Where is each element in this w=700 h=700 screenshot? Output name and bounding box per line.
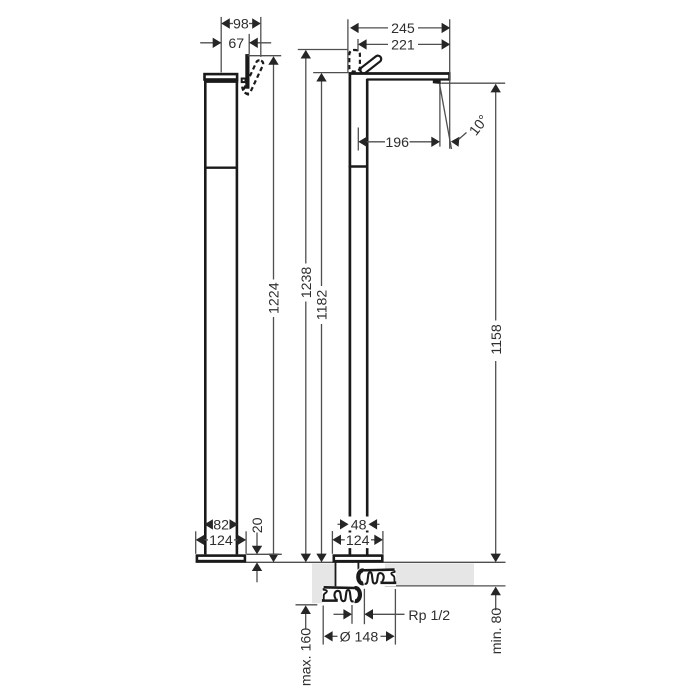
svg-text:245: 245 — [391, 21, 415, 37]
svg-text:82: 82 — [213, 518, 229, 534]
svg-text:196: 196 — [385, 135, 409, 151]
svg-text:Ø 148: Ø 148 — [340, 629, 379, 645]
svg-text:1238: 1238 — [299, 267, 315, 299]
svg-text:1182: 1182 — [315, 290, 331, 321]
svg-text:1224: 1224 — [267, 282, 283, 314]
svg-text:48: 48 — [351, 517, 367, 533]
svg-text:Rp 1/2: Rp 1/2 — [408, 608, 450, 624]
svg-text:98: 98 — [233, 17, 249, 33]
svg-text:221: 221 — [391, 38, 415, 54]
svg-text:124: 124 — [209, 533, 233, 549]
svg-text:min. 80: min. 80 — [489, 608, 505, 655]
svg-text:1158: 1158 — [489, 324, 505, 355]
svg-text:67: 67 — [228, 36, 244, 52]
svg-text:124: 124 — [346, 533, 370, 549]
svg-text:max. 160: max. 160 — [299, 628, 315, 686]
svg-text:20: 20 — [250, 517, 266, 533]
